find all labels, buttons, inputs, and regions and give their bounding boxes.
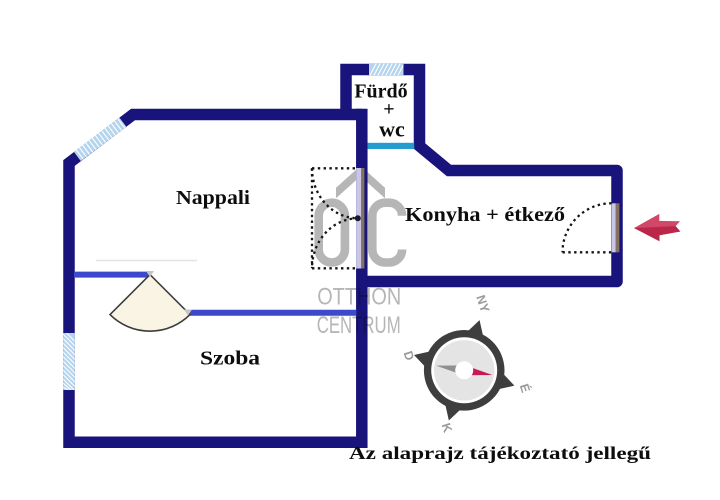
svg-text:K: K xyxy=(439,421,455,434)
svg-text:OTTHON: OTTHON xyxy=(317,284,401,311)
svg-text:Fürdő: Fürdő xyxy=(354,80,407,102)
svg-text:D: D xyxy=(401,349,417,362)
svg-text:CENTRUM: CENTRUM xyxy=(317,312,401,339)
svg-text:Konyha + étkező: Konyha + étkező xyxy=(405,204,565,226)
svg-text:É: É xyxy=(517,382,534,395)
svg-text:NY: NY xyxy=(473,293,492,314)
svg-text:Szoba: Szoba xyxy=(200,348,260,370)
svg-text:wc: wc xyxy=(379,117,405,142)
svg-text:Nappali: Nappali xyxy=(176,187,250,209)
svg-text:Az alaprajz tájékoztató jelleg: Az alaprajz tájékoztató jellegű xyxy=(349,443,651,463)
